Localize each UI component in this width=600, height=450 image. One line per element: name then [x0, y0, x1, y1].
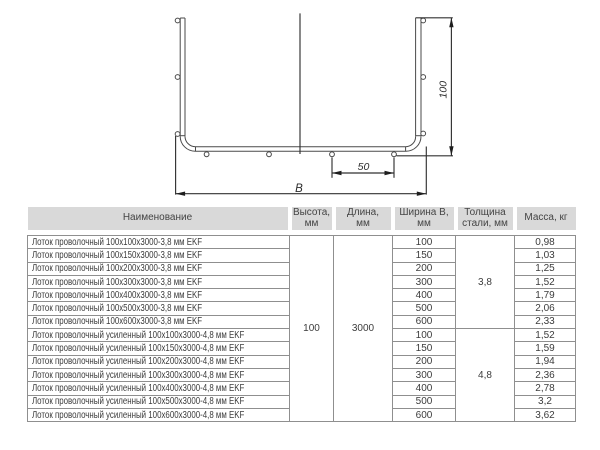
svg-text:100: 100: [438, 81, 450, 99]
svg-text:B: B: [295, 183, 303, 195]
svg-text:50: 50: [358, 161, 370, 173]
